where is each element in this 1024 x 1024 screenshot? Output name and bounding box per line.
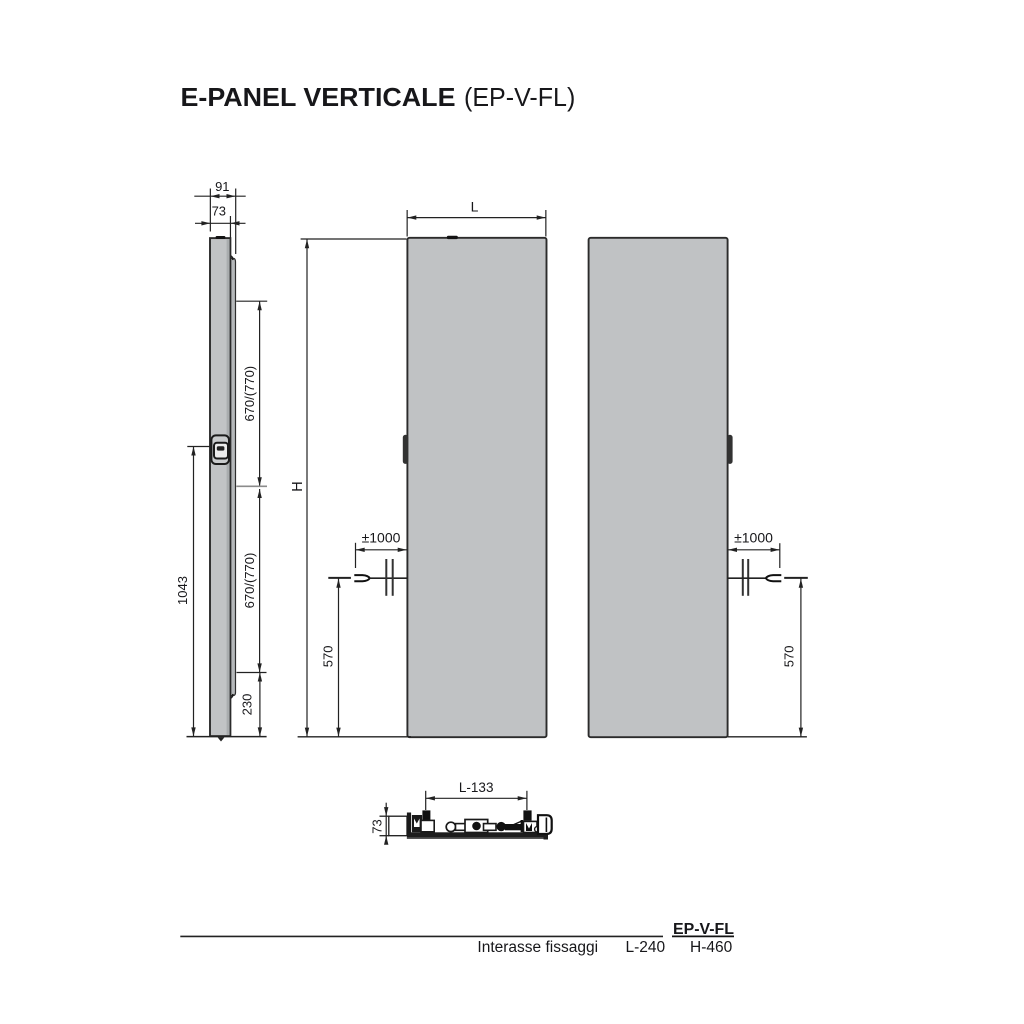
- svg-text:73: 73: [369, 819, 384, 833]
- svg-text:230: 230: [240, 694, 255, 716]
- svg-text:L: L: [471, 199, 479, 215]
- svg-text:570: 570: [782, 646, 797, 668]
- svg-text:Interasse fissaggi: Interasse fissaggi: [477, 939, 598, 956]
- svg-text:H-460: H-460: [690, 939, 733, 956]
- svg-text:EP-V-FL: EP-V-FL: [673, 921, 734, 938]
- svg-text:E-PANEL VERTICALE: E-PANEL VERTICALE: [181, 82, 456, 112]
- svg-text:(EP-V-FL): (EP-V-FL): [464, 82, 575, 112]
- svg-text:L-240: L-240: [626, 939, 666, 956]
- svg-text:670/(770): 670/(770): [242, 366, 257, 422]
- svg-text:±1000: ±1000: [362, 529, 401, 545]
- svg-text:91: 91: [215, 179, 229, 194]
- svg-text:L-133: L-133: [459, 780, 494, 795]
- svg-text:H: H: [290, 481, 306, 491]
- svg-text:570: 570: [320, 646, 335, 668]
- svg-text:±1000: ±1000: [734, 529, 773, 545]
- svg-text:670/(770): 670/(770): [242, 553, 257, 609]
- svg-text:1043: 1043: [175, 576, 190, 605]
- svg-text:73: 73: [212, 204, 226, 219]
